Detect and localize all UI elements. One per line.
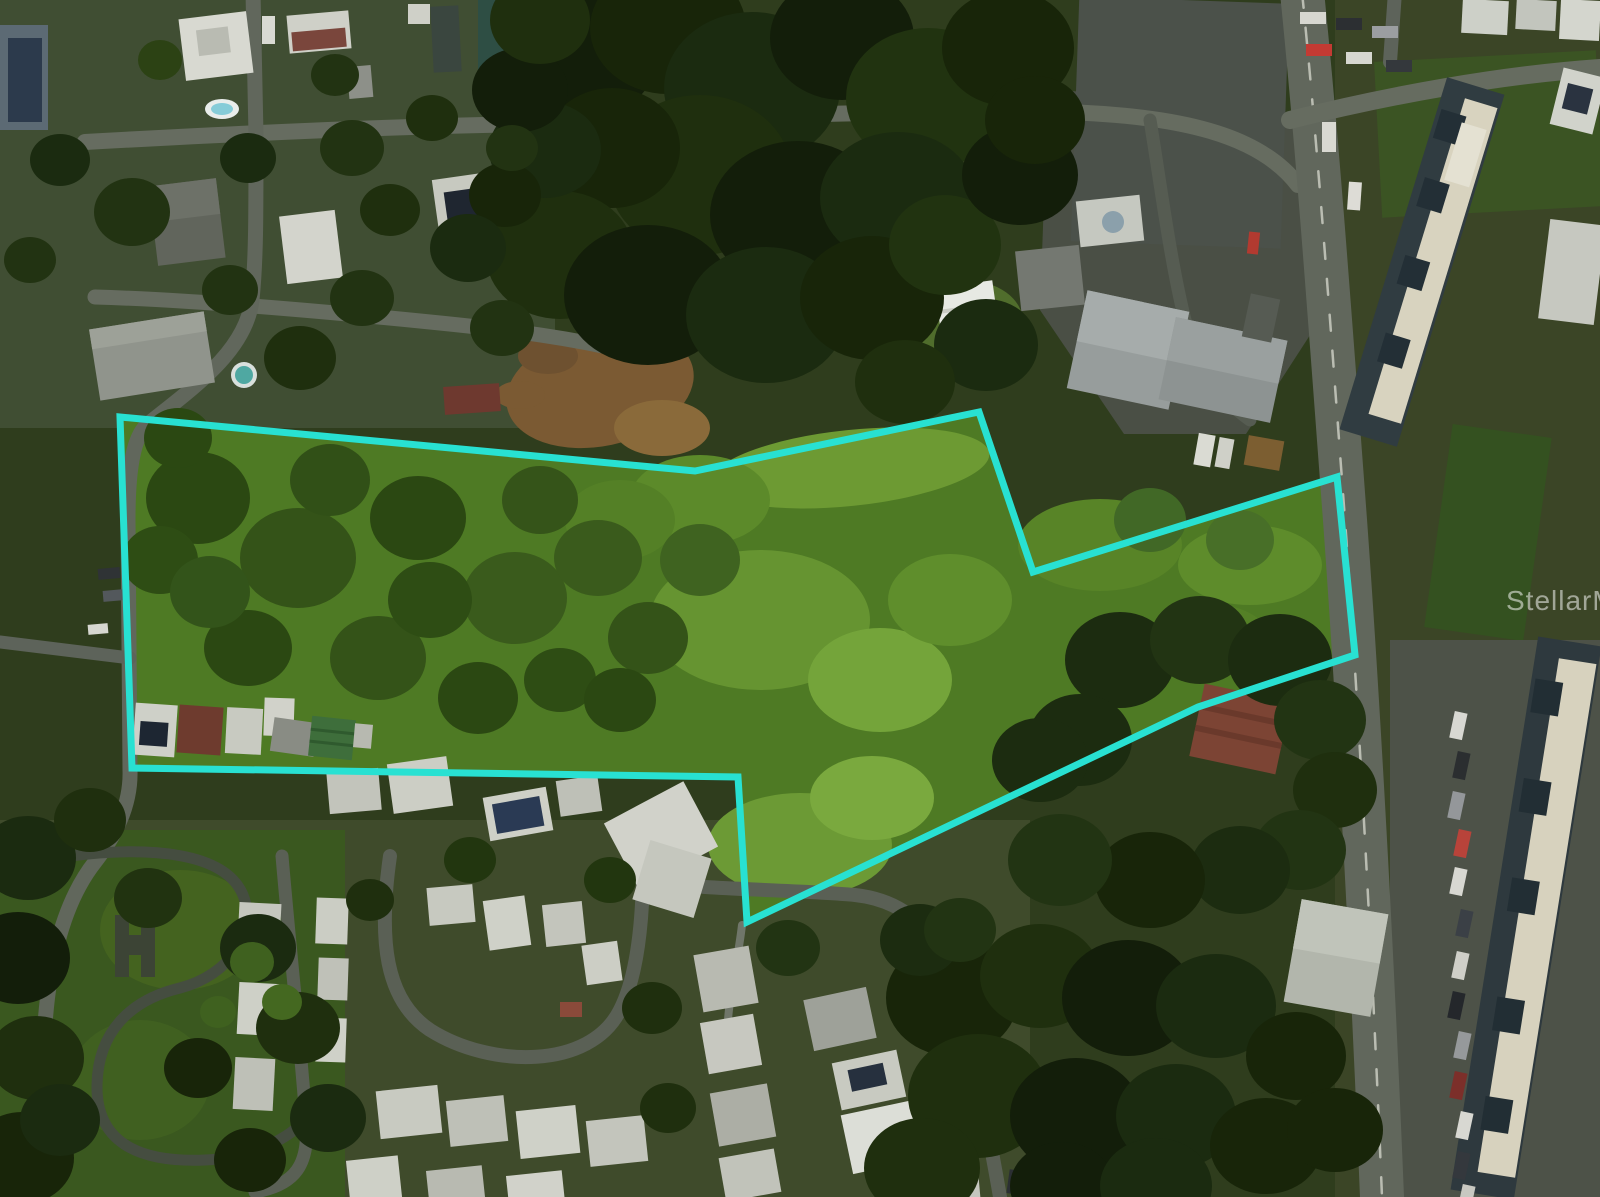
tree-canopy	[1274, 680, 1366, 760]
apartment-roof-section	[1530, 679, 1563, 717]
tree-canopy	[214, 1128, 286, 1192]
building-roof	[408, 4, 430, 24]
tree-canopy	[170, 556, 250, 628]
stellar-mls-watermark: StellarMLS	[1506, 585, 1600, 616]
tree-canopy	[756, 920, 820, 976]
tree-canopy	[4, 237, 56, 283]
tree-canopy	[164, 1038, 232, 1098]
tree-canopy	[486, 125, 538, 171]
car	[1372, 26, 1398, 38]
tree-canopy	[1287, 1088, 1383, 1172]
building-roof-maroon	[443, 383, 501, 415]
building-roof	[315, 897, 349, 944]
building-roof	[693, 946, 758, 1013]
tree-canopy	[584, 668, 656, 732]
field-bright-patch	[810, 756, 934, 840]
pool-oval-water	[211, 103, 233, 115]
tree-canopy	[20, 1084, 100, 1156]
tree-canopy	[463, 552, 567, 644]
dirt-patch	[495, 381, 545, 409]
building-roof-rusty	[176, 705, 223, 756]
tree-canopy	[855, 340, 955, 424]
car	[1346, 52, 1372, 64]
tree-canopy	[1095, 832, 1205, 928]
tree-canopy	[370, 476, 466, 560]
building-roof	[700, 1014, 762, 1075]
building-roof	[225, 707, 263, 755]
tree-canopy	[438, 662, 518, 734]
tree-canopy	[202, 265, 258, 315]
tree-canopy	[1008, 814, 1112, 906]
building-roof	[376, 1085, 443, 1139]
building-roof	[233, 1057, 276, 1111]
car	[1322, 122, 1336, 152]
tree-canopy	[264, 326, 336, 390]
palm-tree	[230, 942, 274, 982]
apartment-roof-section	[1480, 1096, 1513, 1134]
car	[262, 16, 275, 44]
car	[1336, 18, 1362, 30]
building-roof	[1515, 0, 1557, 31]
car	[1300, 12, 1326, 24]
building-roof	[710, 1083, 776, 1146]
building-roof	[516, 1105, 581, 1159]
car	[88, 623, 109, 635]
tree-canopy	[114, 868, 182, 928]
building-roof	[483, 895, 532, 950]
tree-canopy	[444, 837, 496, 883]
tree-canopy	[388, 562, 472, 638]
palm-tree	[262, 984, 302, 1020]
tree-canopy	[660, 524, 740, 596]
tree-canopy	[1246, 1012, 1346, 1100]
tree-canopy	[608, 602, 688, 674]
tree-canopy	[330, 270, 394, 326]
building-roof	[317, 957, 348, 1000]
tree-canopy	[502, 466, 578, 534]
tree-canopy	[138, 40, 182, 80]
building-roof-green	[308, 716, 356, 760]
building-roof	[353, 723, 373, 748]
tree-canopy	[406, 95, 458, 141]
building-roof	[387, 756, 453, 814]
building-roof	[581, 941, 622, 986]
tree-canopy	[360, 184, 420, 236]
car	[1306, 44, 1332, 56]
solar-panels	[139, 721, 169, 747]
building-roof	[346, 1155, 402, 1197]
dirt-patch	[614, 400, 710, 456]
building-roof	[542, 901, 586, 947]
tree-canopy	[290, 444, 370, 516]
tree-canopy	[94, 178, 170, 246]
apartment-roof-section	[1519, 778, 1552, 816]
tree-canopy	[985, 76, 1085, 164]
tree-canopy	[220, 133, 276, 183]
building-roof	[1015, 245, 1085, 311]
rooftop-tank	[1102, 211, 1124, 233]
tree-canopy	[924, 898, 996, 962]
field-bright-patch	[888, 554, 1012, 646]
tree-canopy	[584, 857, 636, 903]
building-roof	[279, 210, 343, 284]
tree-canopy	[30, 134, 90, 186]
pool-round-water	[235, 366, 253, 384]
car	[1247, 232, 1260, 255]
tree-canopy	[54, 788, 126, 852]
building-roof	[1559, 0, 1600, 41]
building-roof	[426, 884, 475, 926]
tree-canopy	[430, 214, 506, 282]
patio	[560, 1002, 582, 1017]
car	[98, 567, 121, 580]
tree-canopy	[992, 718, 1088, 802]
tree-canopy	[640, 1083, 696, 1133]
building-roof	[446, 1095, 508, 1147]
tree-canopy	[1190, 826, 1290, 914]
tree-canopy	[622, 982, 682, 1034]
solar-panels	[8, 38, 42, 122]
aerial-photo: StellarMLS	[0, 0, 1600, 1197]
building-roof	[1461, 0, 1509, 35]
tree-canopy	[346, 879, 394, 921]
car	[1347, 182, 1362, 211]
tree-canopy	[554, 520, 642, 596]
pallet-stacks	[1244, 435, 1285, 471]
tree-canopy	[470, 300, 534, 356]
apartment-roof-section	[1492, 996, 1525, 1034]
tree-canopy	[320, 120, 384, 176]
building-roof	[196, 26, 231, 56]
tree-canopy	[240, 508, 356, 608]
tree-canopy	[1206, 510, 1274, 570]
apartment-roof-section	[1507, 877, 1540, 915]
tree-canopy	[290, 1084, 366, 1152]
palm-tree	[200, 996, 236, 1028]
building-roof	[556, 775, 603, 816]
tree-canopy	[311, 54, 359, 96]
car	[103, 589, 126, 602]
building-roof	[586, 1115, 648, 1167]
building-roof-dark	[430, 5, 461, 72]
car	[1386, 60, 1412, 72]
aerial-listing-photo: StellarMLS	[0, 0, 1600, 1197]
